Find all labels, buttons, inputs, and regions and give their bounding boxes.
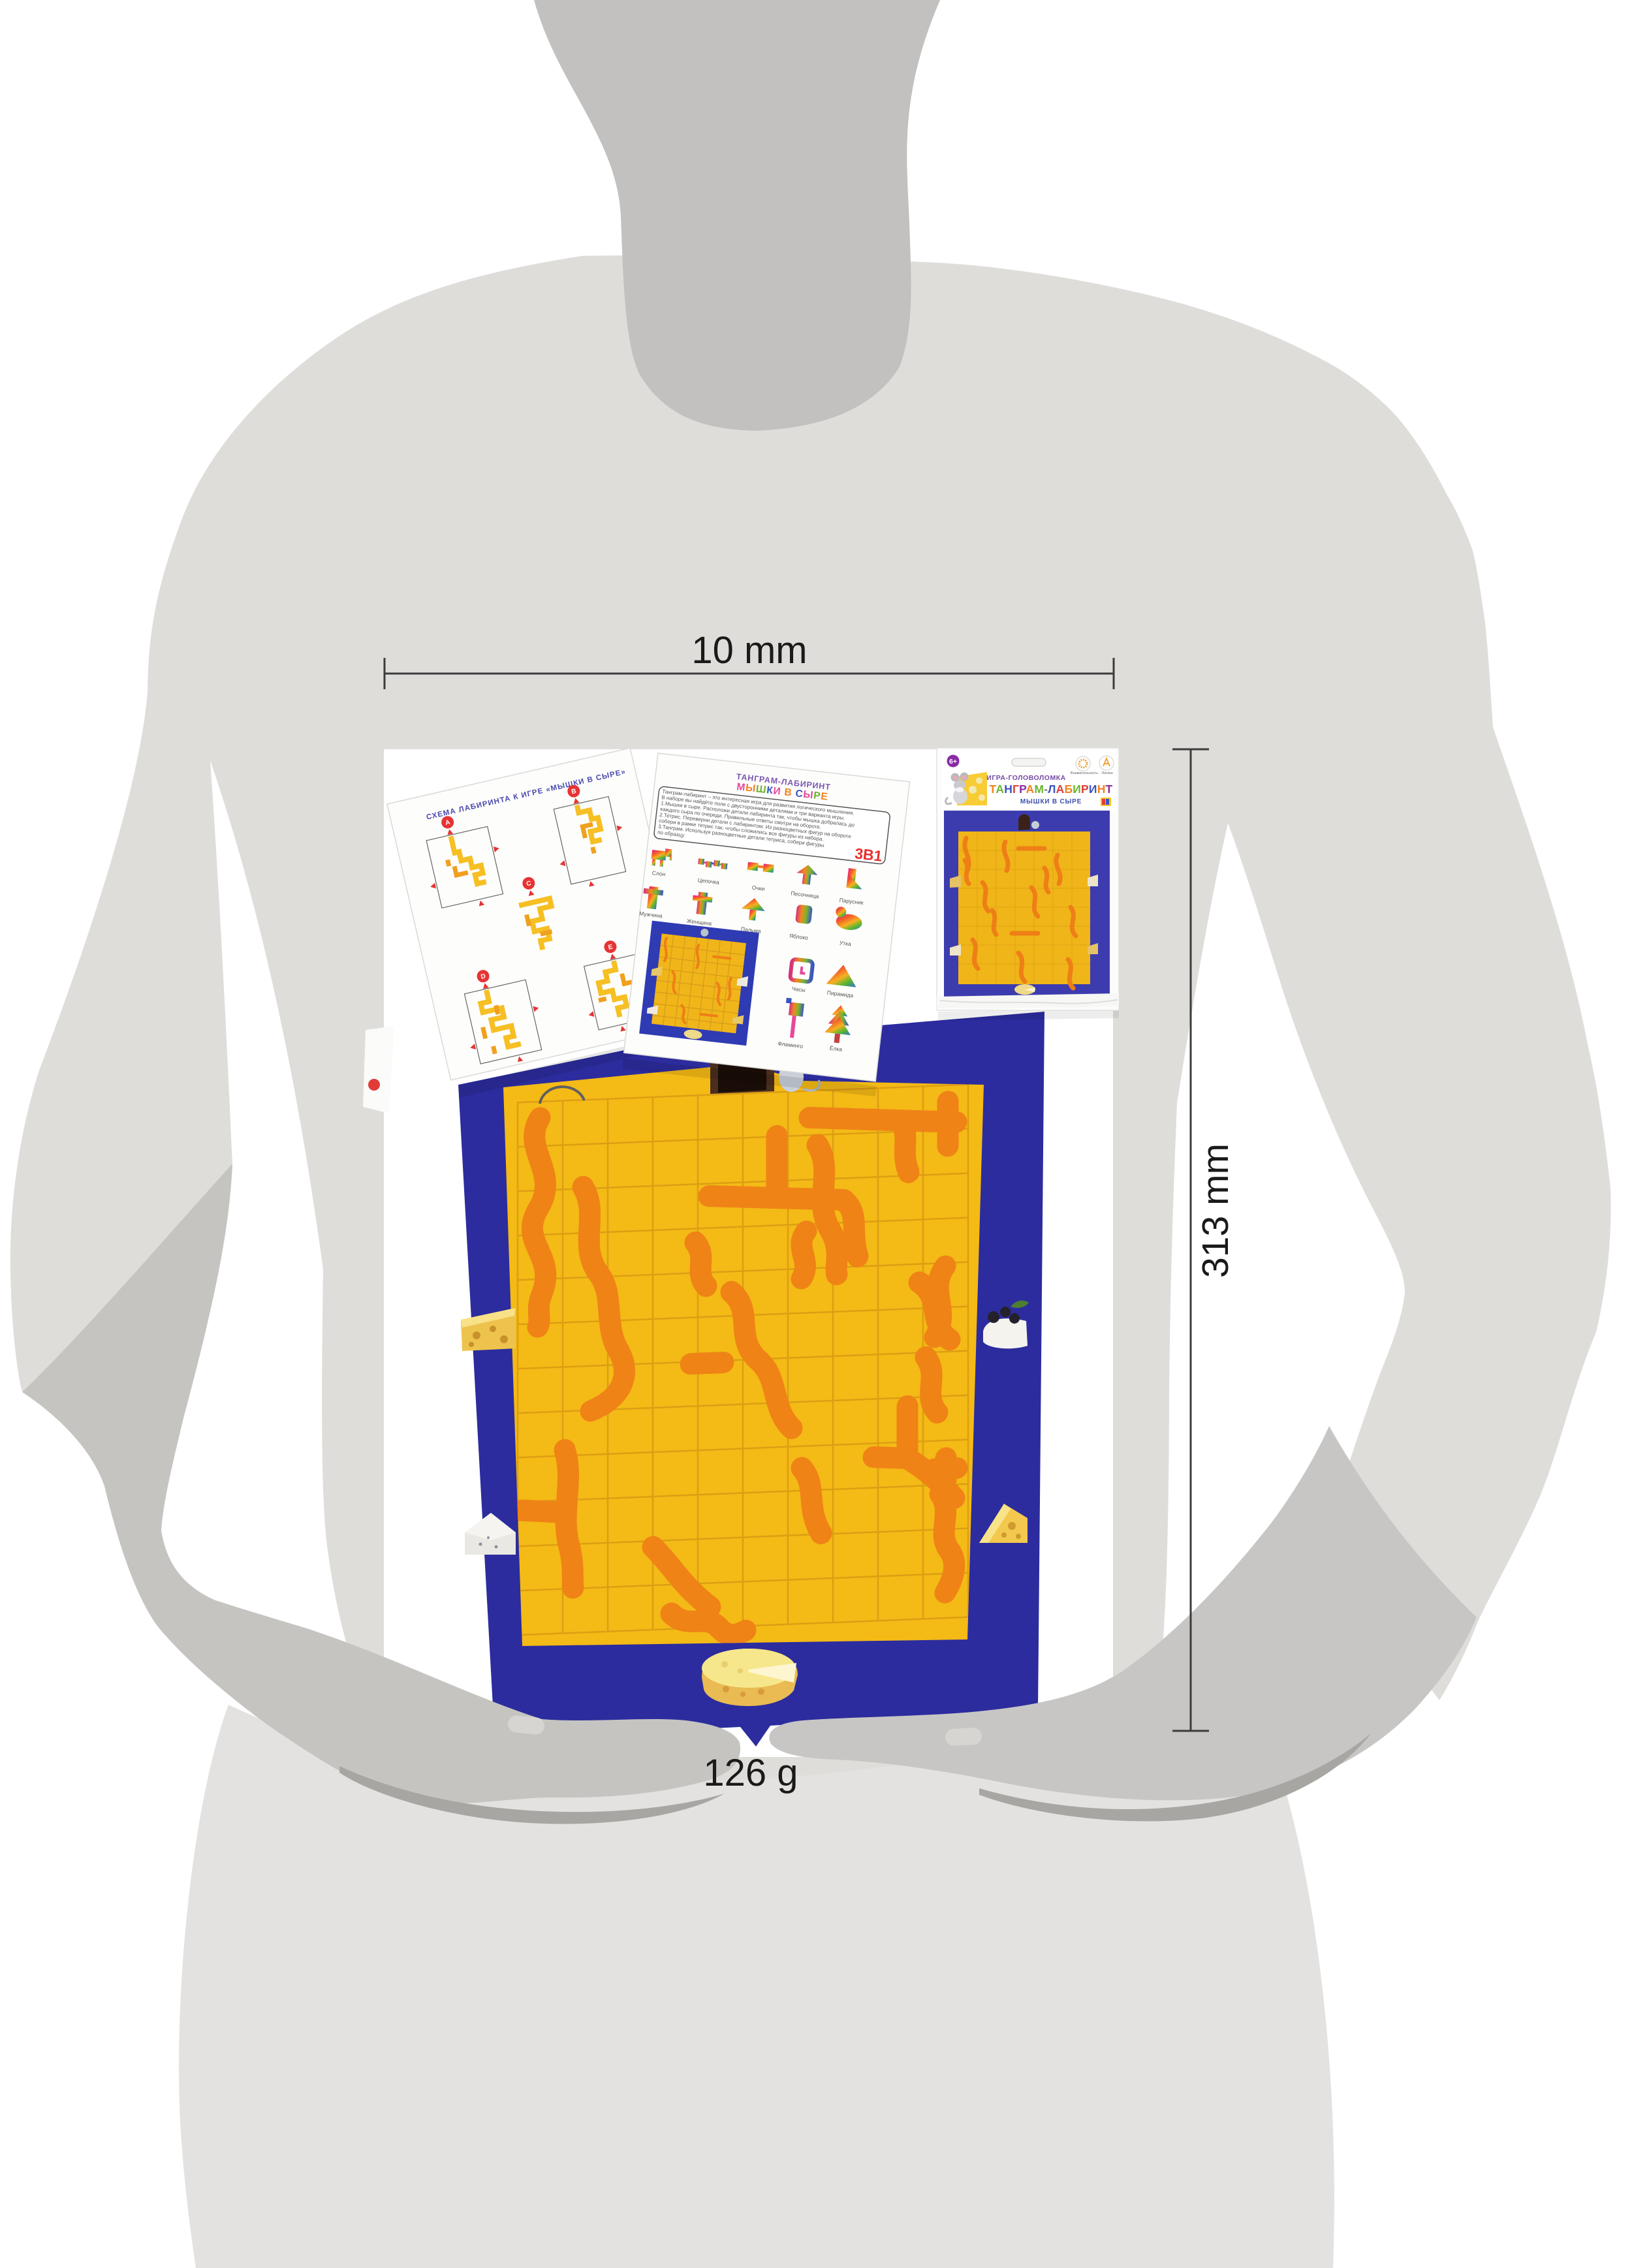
svg-text:10 mm: 10 mm [691,629,807,672]
svg-text:Утка: Утка [839,939,851,947]
svg-text:Логика: Логика [1101,771,1113,775]
svg-text:313 mm: 313 mm [1195,1143,1236,1278]
svg-text:Внимательность: Внимательность [1071,771,1098,775]
svg-text:МЫШКИ В СЫРЕ: МЫШКИ В СЫРЕ [1020,798,1082,805]
svg-text:ТАНГРАМ-ЛАБИРИНТ: ТАНГРАМ-ЛАБИРИНТ [990,783,1113,796]
svg-text:6+: 6+ [949,758,957,766]
svg-text:ИГРА-ГОЛОВОЛОМКА: ИГРА-ГОЛОВОЛОМКА [986,774,1065,782]
svg-text:126 g: 126 g [703,1752,798,1794]
svg-text:3В1: 3В1 [854,845,883,865]
